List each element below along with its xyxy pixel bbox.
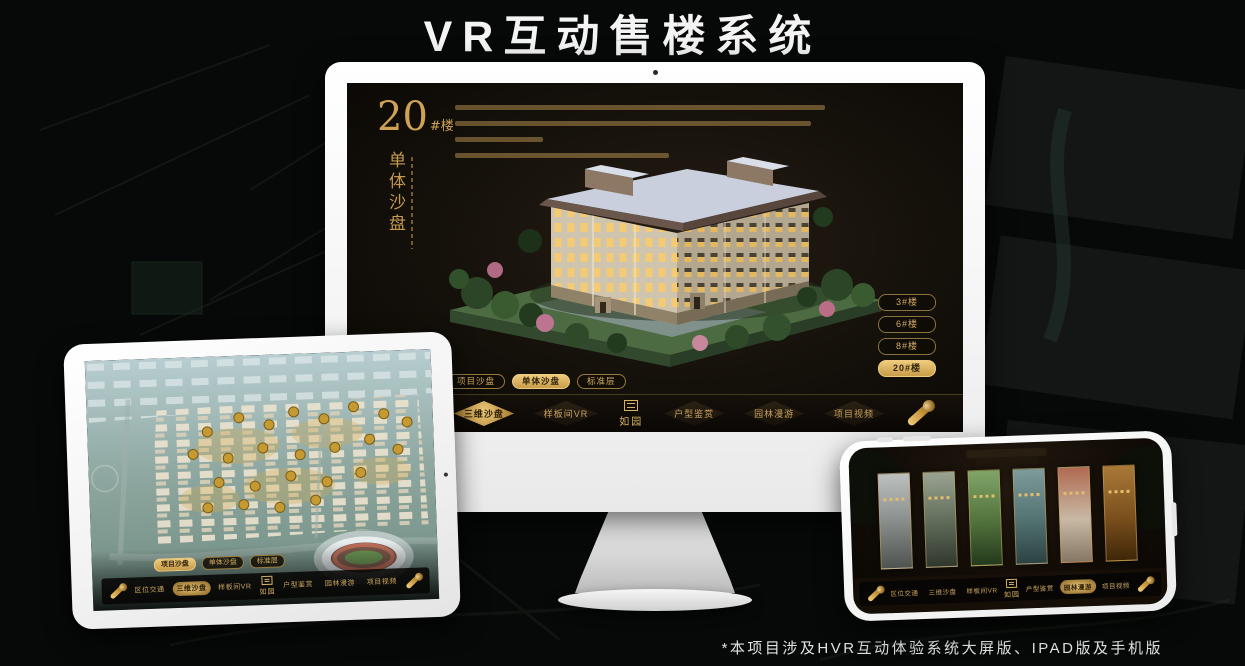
gallery-panel[interactable]	[878, 472, 913, 569]
block-number: 20#楼	[377, 97, 454, 137]
phone-screen: 区位交通 三维沙盘 样板间VR 如园 户型鉴赏 园林漫游 项目视频	[848, 438, 1168, 615]
tab-single-sandtable[interactable]: 单体沙盘	[202, 556, 244, 570]
menu-item-3d-sandtable[interactable]: 三维沙盘	[924, 584, 960, 599]
menu-item-3d-sandtable[interactable]: 三维沙盘	[455, 403, 513, 424]
menu-item-project-video[interactable]: 项目视频	[825, 403, 883, 424]
sandtable-tabs: 项目沙盘 单体沙盘 标准层	[447, 374, 626, 389]
tab-label: 单体沙盘	[209, 559, 237, 567]
logo-text: 如园	[259, 586, 275, 597]
gallery-panel[interactable]	[1013, 468, 1048, 565]
floor-button-8[interactable]: 8#楼	[878, 338, 936, 355]
tab-standard-floor[interactable]: 标准层	[250, 554, 285, 568]
menu-item-showroom-vr[interactable]: 样板间VR	[535, 403, 598, 424]
tab-standard-floor[interactable]: 标准层	[577, 374, 626, 389]
ruyuan-logo: 如园	[1003, 578, 1020, 600]
page-title: VR互动售楼系统	[0, 2, 1245, 64]
menu-item-garden-roam[interactable]: 园林漫游	[1060, 579, 1096, 594]
menu-item-label: 项目视频	[834, 409, 874, 419]
scroll-icon[interactable]	[110, 583, 126, 599]
menu-item-project-video[interactable]: 项目视频	[363, 574, 401, 589]
building-render-image	[435, 145, 897, 381]
scroll-icon[interactable]	[1137, 576, 1153, 592]
monitor-camera-dot	[653, 70, 658, 75]
gallery-panel[interactable]	[1057, 466, 1092, 563]
gallery-panel[interactable]	[923, 471, 958, 568]
scroll-icon[interactable]	[867, 586, 883, 602]
gallery-panel[interactable]	[1102, 465, 1137, 562]
phone-side-button	[903, 436, 931, 442]
floor-button-group: 3#楼 6#楼 8#楼 20#楼	[878, 294, 936, 377]
seal-icon	[1006, 578, 1017, 587]
tab-project-sandtable[interactable]: 项目沙盘	[447, 374, 505, 389]
menu-item-floorplans[interactable]: 户型鉴赏	[665, 403, 723, 424]
block-english-caption	[411, 157, 413, 249]
tab-label: 标准层	[257, 557, 278, 565]
menu-item-label: 三维沙盘	[464, 409, 504, 419]
seal-icon	[261, 575, 272, 584]
menu-item-showroom-vr[interactable]: 样板间VR	[962, 582, 1001, 597]
floor-button-label: 20#楼	[893, 363, 921, 373]
menu-item-floorplans[interactable]: 户型鉴赏	[279, 577, 317, 592]
tablet-device: 项目沙盘 单体沙盘 标准层 区位交通 三维沙盘 样板间VR 如园 户型鉴赏 园林…	[63, 331, 461, 629]
menu-item-label: 园林漫游	[754, 409, 794, 419]
seal-icon	[624, 400, 638, 411]
block-unit-text: #楼	[430, 119, 454, 134]
ruyuan-logo: 如园	[259, 575, 276, 597]
block-name-vertical: 单体沙盘	[383, 151, 408, 235]
logo-text: 如园	[1004, 589, 1020, 600]
menu-item-location[interactable]: 区位交通	[886, 585, 922, 600]
logo-text: 如园	[619, 413, 643, 428]
menu-item-garden-roam[interactable]: 园林漫游	[745, 403, 803, 424]
gallery-panels	[878, 465, 1138, 570]
tab-label: 单体沙盘	[522, 376, 560, 386]
tab-project-sandtable[interactable]: 项目沙盘	[154, 557, 196, 571]
tab-single-sandtable[interactable]: 单体沙盘	[512, 374, 570, 389]
menu-item-3d-sandtable[interactable]: 三维沙盘	[172, 581, 210, 596]
tab-label: 项目沙盘	[161, 561, 189, 569]
menu-item-showroom-vr[interactable]: 样板间VR	[214, 579, 256, 594]
monitor-base	[558, 589, 752, 611]
floor-button-20[interactable]: 20#楼	[878, 360, 936, 377]
menu-item-label: 样板间VR	[544, 409, 589, 419]
tab-label: 标准层	[587, 376, 616, 386]
menu-item-garden-roam[interactable]: 园林漫游	[321, 576, 359, 591]
scroll-icon[interactable]	[906, 400, 934, 426]
footnote: *本项目涉及HVR互动体验系统大屏版、IPAD版及手机版	[722, 637, 1163, 658]
gallery-panel[interactable]	[968, 469, 1003, 566]
menu-item-floorplans[interactable]: 户型鉴赏	[1022, 580, 1058, 595]
menu-item-project-video[interactable]: 项目视频	[1098, 578, 1134, 593]
phone-device: 区位交通 三维沙盘 样板间VR 如园 户型鉴赏 园林漫游 项目视频	[839, 430, 1177, 621]
tab-label: 项目沙盘	[457, 376, 495, 386]
phone-side-button	[877, 437, 893, 443]
menu-item-location[interactable]: 区位交通	[130, 582, 168, 597]
tablet-camera-dot	[444, 472, 448, 476]
floor-button-3[interactable]: 3#楼	[878, 294, 936, 311]
floor-button-6[interactable]: 6#楼	[878, 316, 936, 333]
floor-button-label: 8#楼	[896, 341, 918, 351]
floor-button-label: 3#楼	[896, 297, 918, 307]
menu-item-label: 户型鉴赏	[674, 409, 714, 419]
floor-button-label: 6#楼	[896, 319, 918, 329]
block-number-text: 20	[377, 94, 428, 140]
tablet-screen: 项目沙盘 单体沙盘 标准层 区位交通 三维沙盘 样板间VR 如园 户型鉴赏 园林…	[85, 349, 440, 611]
scroll-icon[interactable]	[405, 573, 421, 589]
ruyuan-logo: 如园	[619, 400, 643, 428]
